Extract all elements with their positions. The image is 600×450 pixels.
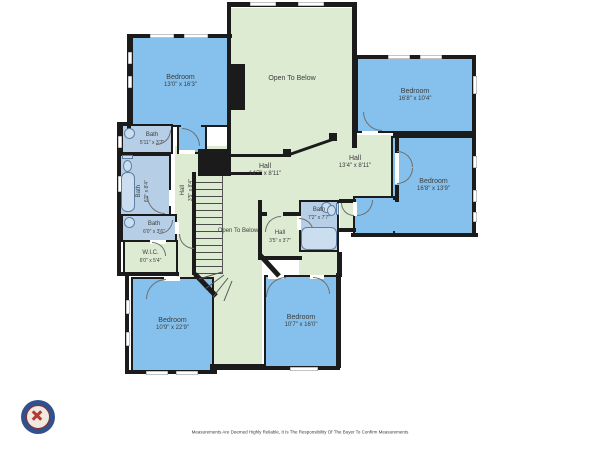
brand-seal-center [26,405,50,429]
disclaimer-text: Measurements Are Deemed Highly Reliable,… [165,430,435,435]
diagonal-walls-overlay [0,0,600,450]
brand-seal-logo [21,400,55,434]
floor-plan-canvas: Bedroom 13'0" x 16'3" Bedroom 16'8" x 10… [0,0,600,450]
